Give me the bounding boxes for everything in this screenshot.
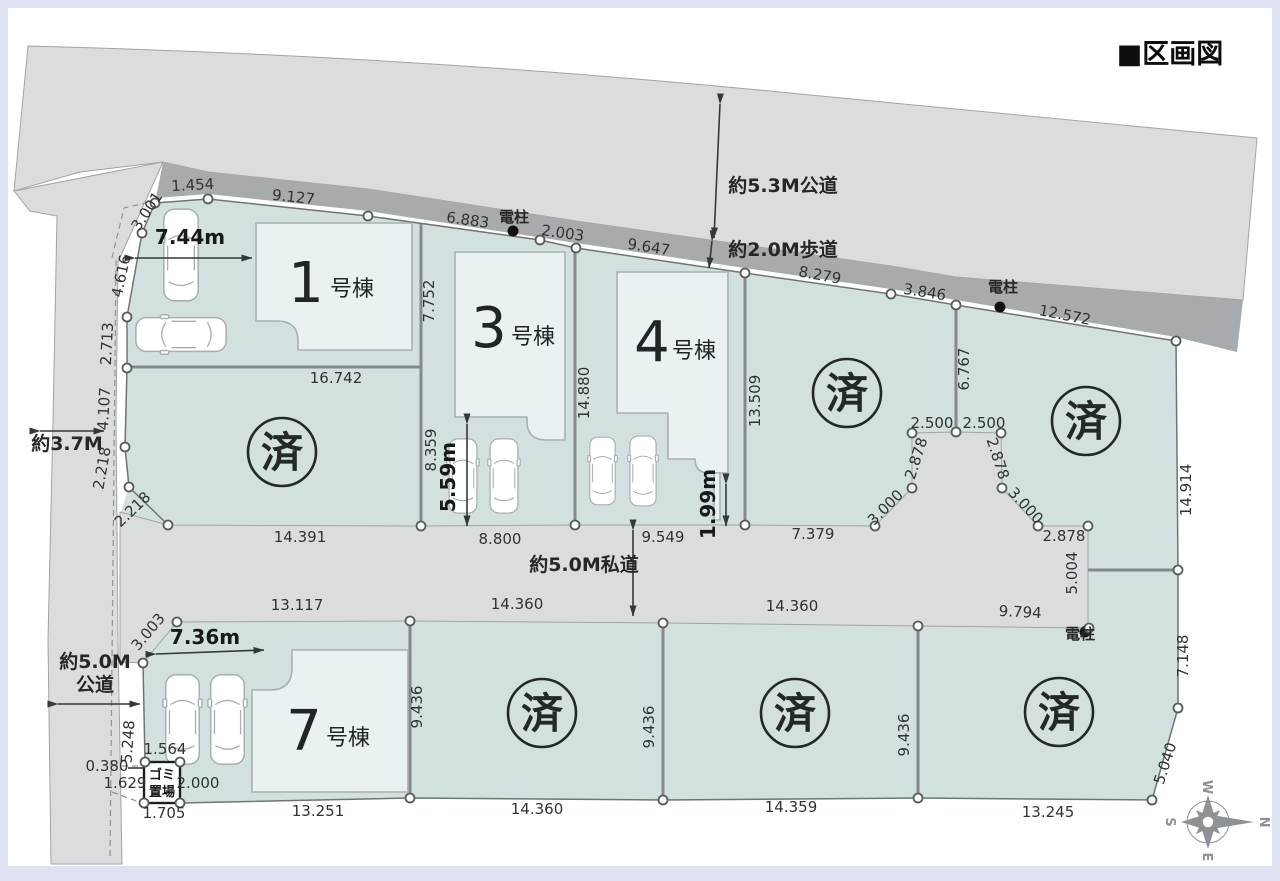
building-3-number: 3 [471,296,507,361]
building-4-number: 4 [634,310,670,375]
garbage-label-line2: 置場 [149,784,175,800]
dim-label: 9.549 [642,528,685,546]
private-road-label: 約5.0M私道 [529,553,639,576]
lot-map-page: ゴミ 置場 [0,0,1280,881]
utility-pole-dot [995,302,1006,313]
dim-label: 2.713 [97,322,117,366]
dim-label: 8.800 [479,530,522,548]
parking-width-lot7: 7.36m [170,625,240,649]
dim-label: 8.359 [422,429,440,472]
dim-label: 14.391 [274,528,327,546]
car-icon [588,437,618,505]
dim-label: 7.379 [792,525,835,543]
dim-label: 1.454 [171,175,215,195]
sold-mark: 済 [1065,397,1108,446]
car-icon [161,209,201,301]
dim-label: 2.878 [1043,527,1086,545]
sold-mark: 済 [1038,688,1081,737]
dim-label: 14.360 [766,597,819,615]
car-icon [208,675,247,764]
building-1-number: 1 [288,251,324,316]
compass-north-label: N [1256,817,1271,828]
dim-label: 0.380 [86,757,129,775]
dim-label: 2.500 [963,414,1006,432]
parking-width-lot1: 7.44m [155,225,225,249]
dim-label: 1.564 [144,740,187,758]
lot-map-drawing: ゴミ 置場 [0,0,1280,881]
dim-label: 14.914 [1177,464,1195,517]
dim-label: 16.742 [310,369,363,387]
dim-label: 14.360 [491,595,544,613]
dim-label: 13.117 [271,596,324,614]
dim-label: 7.752 [420,280,438,323]
dim-label: 13.509 [746,375,764,428]
car-icon [488,439,520,513]
car-icon [628,436,659,506]
north-road-label: 約5.3M公道 [728,174,838,197]
utility-pole-label: 電柱 [1065,625,1095,643]
dim-label: 13.251 [292,802,345,820]
building-1-suffix: 号棟 [330,277,374,302]
dim-label: 9.794 [998,602,1042,622]
dim-label: 9.436 [895,714,913,757]
garbage-label-line1: ゴミ [149,767,175,783]
building-7-suffix: 号棟 [326,726,370,751]
dim-label: 6.767 [955,348,973,391]
dim-label: 2.500 [911,414,954,432]
compass-west-label: W [1199,780,1214,794]
west-road-label: 約3.7M [31,432,103,455]
sw-road-label-line1: 約5.0M [59,650,131,673]
sold-mark: 済 [774,689,817,738]
utility-pole-label: 電柱 [499,208,529,226]
sold-mark: 済 [521,689,564,738]
sidewalk-label: 約2.0M歩道 [728,238,838,261]
dim-label: 5.004 [1063,552,1081,595]
utility-pole-label: 電柱 [988,278,1018,296]
building-7-number: 7 [286,699,322,764]
sold-mark: 済 [261,428,304,477]
garbage-station: ゴミ 置場 [144,762,180,803]
dim-label: 14.359 [765,798,818,816]
gap-width-lot4: 1.99m [696,469,720,539]
dim-label: 1.629 [104,774,147,792]
building-3-suffix: 号棟 [511,325,555,350]
dim-label: 1.705 [143,804,186,822]
dim-label: 14.880 [575,367,593,420]
compass-south-label: S [1162,817,1177,826]
dim-label: 14.360 [511,800,564,818]
dim-label: 9.436 [640,706,658,749]
compass-east-label: E [1199,853,1214,862]
sold-mark: 済 [826,369,869,418]
utility-pole-dot [508,226,519,237]
sw-road-label-line2: 公道 [76,673,114,696]
page-title: ■区画図 [1117,39,1224,70]
dim-label: 9.436 [408,686,426,729]
dim-label: 4.107 [94,387,114,431]
car-icon [136,315,226,354]
dim-label: 2.000 [177,774,220,792]
dim-label: 7.148 [1174,635,1192,678]
building-4-suffix: 号棟 [672,339,716,364]
dim-label: 13.245 [1022,803,1075,821]
